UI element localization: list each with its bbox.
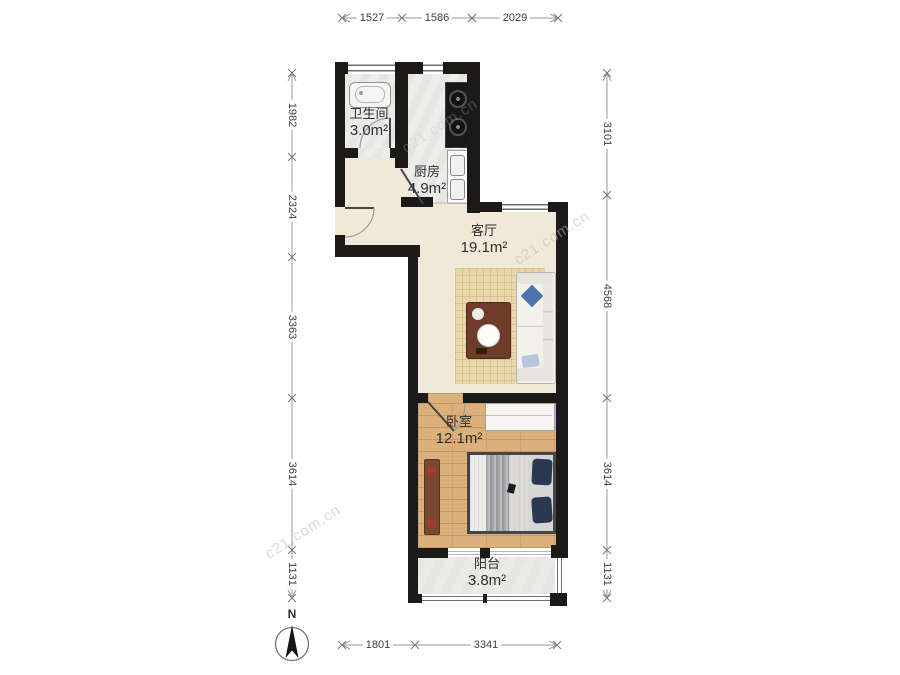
dim-left-3: 3363 [286, 312, 298, 342]
bathroom-area: 3.0m² [349, 122, 388, 140]
bedroom-name: 卧室 [436, 414, 483, 430]
dim-right-1: 3101 [601, 119, 613, 149]
bedroom-label: 卧室 12.1m² [436, 414, 483, 448]
bathroom-label: 卫生间 3.0m² [349, 106, 388, 140]
living-area: 19.1m² [461, 239, 508, 257]
balcony-label: 阳台 3.8m² [468, 556, 506, 590]
kitchen-area: 4.9m² [408, 180, 446, 198]
living-label: 客厅 19.1m² [461, 223, 508, 257]
dim-right-3: 3614 [601, 459, 613, 489]
kitchen-name: 厨房 [408, 164, 446, 180]
north-label: N [288, 607, 297, 621]
dim-left-1: 1982 [286, 100, 298, 130]
dim-bottom-1: 1801 [363, 639, 393, 651]
dim-left-4: 3614 [286, 459, 298, 489]
dim-left-5: 1131 [286, 559, 298, 589]
plan-annotations [0, 0, 900, 675]
dim-right-4: 1131 [601, 559, 613, 589]
kitchen-label: 厨房 4.9m² [408, 164, 446, 198]
door-arcs [345, 118, 465, 431]
north-compass [276, 625, 309, 661]
living-name: 客厅 [461, 223, 508, 239]
dim-top-3: 2029 [500, 12, 530, 24]
balcony-name: 阳台 [468, 556, 506, 572]
bedroom-area: 12.1m² [436, 430, 483, 448]
balcony-area: 3.8m² [468, 572, 506, 590]
dim-top-2: 1586 [422, 12, 452, 24]
dim-bottom-2: 3341 [471, 639, 501, 651]
floorplan-canvas: 卫生间 3.0m² 厨房 4.9m² 客厅 19.1m² 卧室 12.1m² 阳… [0, 0, 900, 675]
bathroom-name: 卫生间 [349, 106, 388, 122]
entrance-door-arc [345, 208, 374, 237]
dim-right-2: 4568 [601, 281, 613, 311]
dim-left-2: 2324 [286, 192, 298, 222]
dim-top-1: 1527 [357, 12, 387, 24]
